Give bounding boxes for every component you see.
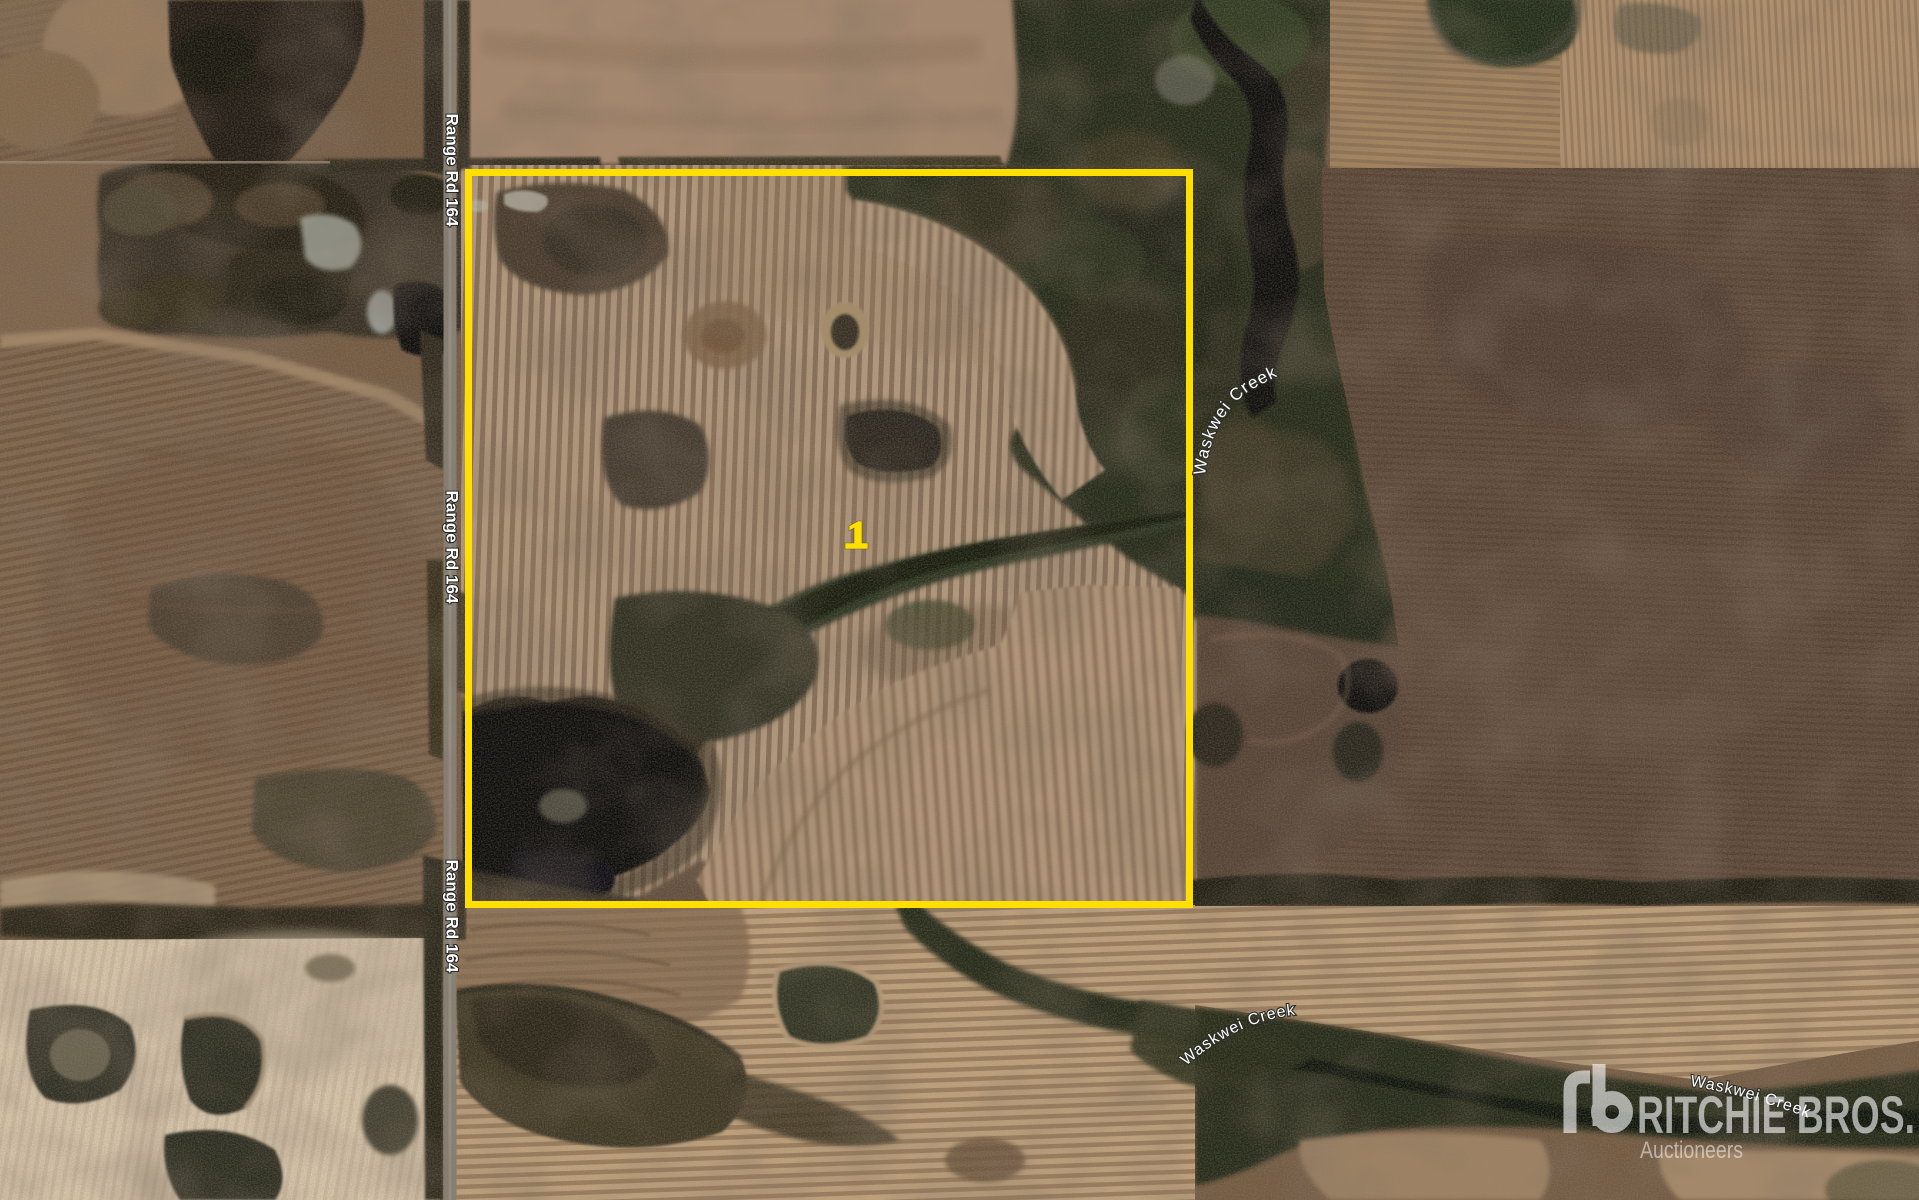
svg-text:Range Rd 164: Range Rd 164 <box>443 114 462 228</box>
svg-text:Range Rd 164: Range Rd 164 <box>443 860 462 974</box>
svg-text:Range Rd 164: Range Rd 164 <box>443 491 462 605</box>
svg-text:Auctioneers: Auctioneers <box>1640 1137 1743 1164</box>
